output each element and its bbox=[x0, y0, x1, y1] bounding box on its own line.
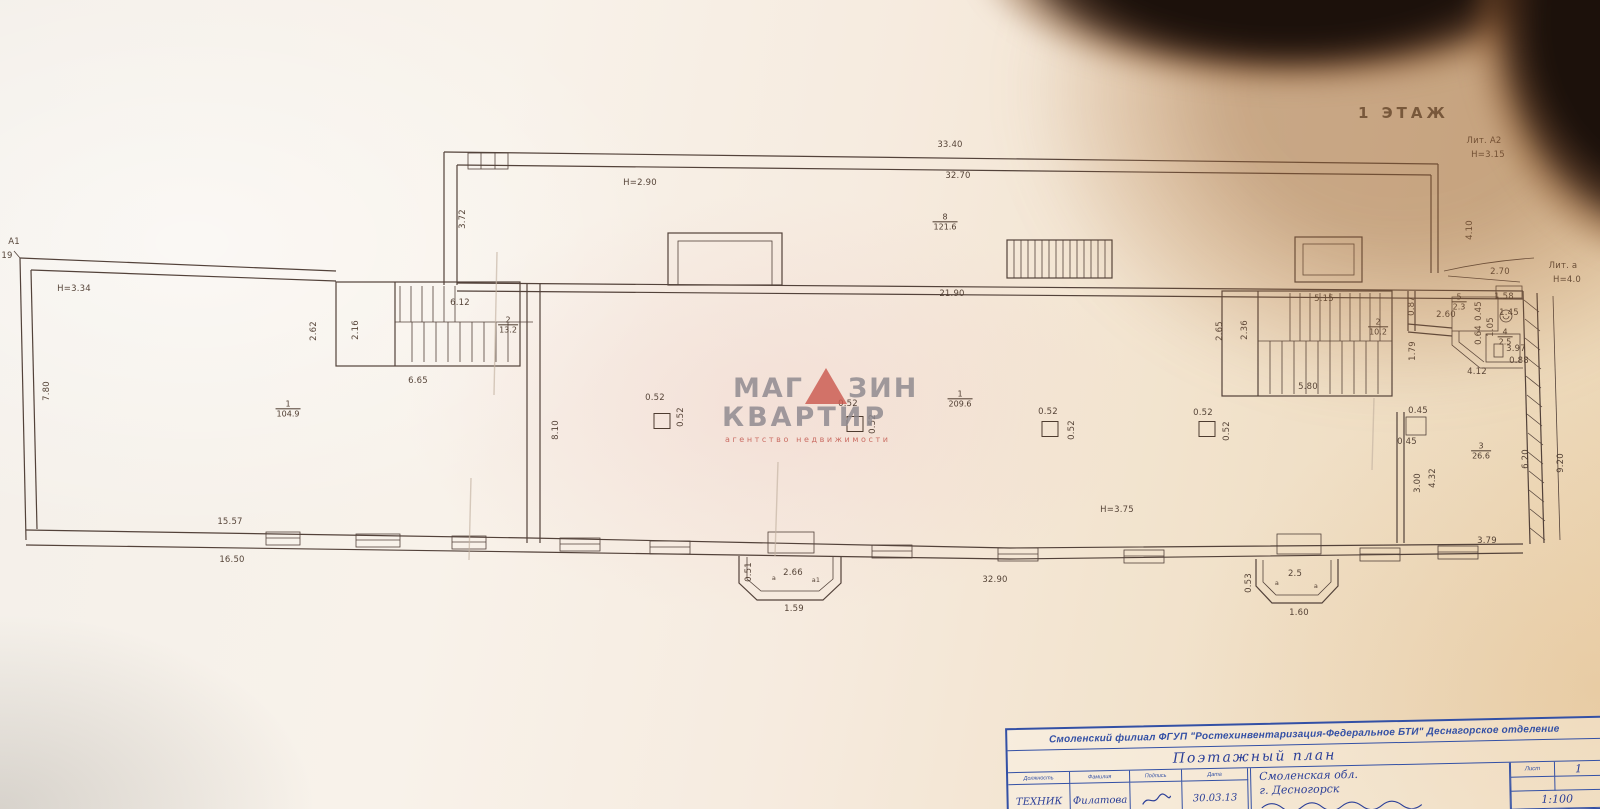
watermark-triangle-icon bbox=[805, 368, 847, 404]
dimension-label: 0.52 bbox=[1038, 407, 1058, 417]
dimension-label: а1 bbox=[812, 576, 821, 584]
floorplan-photo: 33.4032.70Н=2.903.724.102.70Лит. А2Н=3.1… bbox=[0, 0, 1600, 809]
date-value: 30.03.13 bbox=[1182, 780, 1249, 809]
dimension-label: 2.16 bbox=[351, 320, 361, 340]
dimension-label: Н=3.34 bbox=[57, 284, 91, 294]
dimension-label: 15.57 bbox=[217, 517, 242, 527]
room-label: 8121.6 bbox=[933, 212, 958, 231]
dimension-label: 16.50 bbox=[219, 555, 244, 565]
dimension-label: 32.90 bbox=[982, 575, 1007, 585]
dimension-label: 0.52 bbox=[645, 393, 665, 403]
room-label: 326.6 bbox=[1471, 441, 1491, 460]
dimension-label: а bbox=[772, 574, 776, 582]
dimension-label: 0.52 bbox=[1193, 408, 1213, 418]
dimension-label: 2.5 bbox=[1288, 569, 1302, 579]
dimension-label: 0.52 bbox=[1222, 421, 1232, 441]
dimension-label: 7.80 bbox=[42, 381, 52, 401]
dimension-label: 33.40 bbox=[937, 140, 962, 150]
empty-value-cell bbox=[1554, 776, 1600, 791]
dimension-label: 8.10 bbox=[551, 420, 561, 440]
column-marker bbox=[1199, 421, 1216, 437]
sheet-label: Лист bbox=[1510, 762, 1554, 778]
dimension-label: 2.62 bbox=[309, 321, 319, 341]
dimension-label: 0.53 bbox=[1244, 573, 1254, 593]
dimension-label: А1 bbox=[8, 237, 20, 247]
dimension-label: а bbox=[1314, 582, 1318, 590]
column-marker bbox=[654, 413, 671, 429]
name-value: Филатова bbox=[1070, 783, 1131, 809]
dimension-label: 21.90 bbox=[939, 289, 964, 299]
room-label: 1209.6 bbox=[948, 389, 973, 408]
dimension-label: 6.20 bbox=[1521, 449, 1531, 469]
title-block: Смоленский филиал ФГУП "Ростехинвентариз… bbox=[1005, 716, 1600, 809]
dimension-label: 3.00 bbox=[1413, 473, 1423, 493]
watermark-text-mag: МАГ bbox=[733, 373, 804, 404]
col-header-signature: Подпись bbox=[1130, 770, 1182, 783]
scale-value: 1:100 bbox=[1511, 790, 1600, 809]
dimension-label: 0.45 bbox=[1397, 437, 1417, 447]
signature-table: Должность Фамилия Подпись Дата ТЕХНИК Фи… bbox=[1008, 768, 1252, 809]
dimension-label: 6.12 bbox=[450, 298, 470, 308]
dimension-label: 9.20 bbox=[1556, 453, 1566, 473]
watermark-logo: МАГЗИН КВАРТИР агентство недвижимости bbox=[722, 368, 918, 444]
dimension-label: а bbox=[1275, 579, 1279, 587]
room-label: 1104.9 bbox=[276, 399, 301, 418]
dimension-label: 1.60 bbox=[1289, 608, 1309, 618]
signature-squiggle-icon bbox=[1140, 791, 1172, 808]
dimension-label: 0.51 bbox=[744, 562, 754, 582]
dimension-label: 3.72 bbox=[458, 209, 468, 229]
watermark-text-zin: ЗИН bbox=[848, 373, 918, 404]
watermark-caption: агентство недвижимости bbox=[725, 435, 918, 444]
column-marker bbox=[1042, 421, 1059, 437]
sheet-cell: Лист 1 1:100 bbox=[1509, 761, 1600, 809]
signature-mark bbox=[1130, 782, 1183, 809]
dimension-label: 0.52 bbox=[676, 407, 686, 427]
room-label: 213.2 bbox=[498, 315, 518, 334]
sheet-number: 1 bbox=[1554, 761, 1600, 777]
dimension-label: 4.32 bbox=[1428, 468, 1438, 488]
dimension-label: 1.59 bbox=[784, 604, 804, 614]
watermark-line1: МАГЗИН bbox=[733, 368, 918, 404]
dimension-label: 0.45 bbox=[1408, 406, 1428, 416]
watermark-line2: КВАРТИР bbox=[722, 402, 918, 433]
location-cell: Смоленская обл. г. Десногорск bbox=[1251, 763, 1510, 809]
dimension-label: 6.65 bbox=[408, 376, 428, 386]
dimension-label: 19 bbox=[1, 251, 12, 261]
dimension-label: 0.52 bbox=[1067, 420, 1077, 440]
dimension-label: 32.70 bbox=[945, 171, 970, 181]
dimension-label: 3.79 bbox=[1477, 536, 1497, 546]
dimension-label: 2.66 bbox=[783, 568, 803, 578]
position-value: ТЕХНИК bbox=[1008, 784, 1071, 809]
dimension-label: Н=3.75 bbox=[1100, 505, 1134, 515]
empty-label-cell bbox=[1510, 777, 1554, 792]
dimension-label: Н=2.90 bbox=[623, 178, 657, 188]
